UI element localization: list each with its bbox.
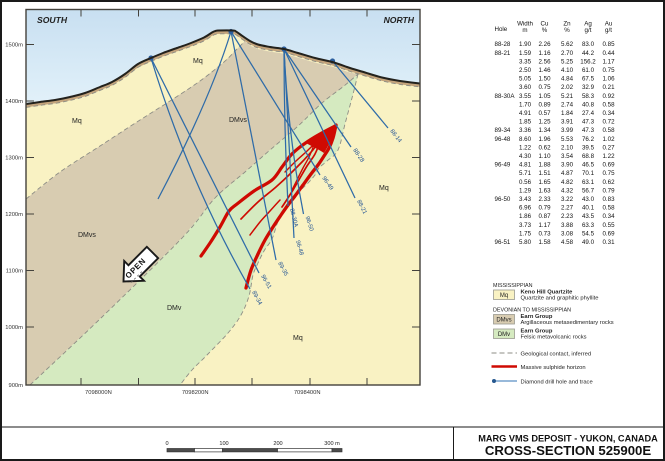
svg-text:CROSS-SECTION 525900E: CROSS-SECTION 525900E — [485, 443, 652, 458]
svg-text:44.2: 44.2 — [582, 50, 595, 57]
svg-text:Mq: Mq — [72, 118, 82, 125]
svg-text:5.05: 5.05 — [519, 76, 532, 83]
svg-text:1.70: 1.70 — [519, 101, 532, 108]
svg-text:0.62: 0.62 — [538, 144, 551, 151]
svg-text:88-28: 88-28 — [495, 41, 511, 48]
svg-text:3.22: 3.22 — [561, 196, 574, 203]
svg-text:1.86: 1.86 — [519, 213, 532, 220]
svg-text:5.62: 5.62 — [561, 41, 574, 48]
svg-text:1.46: 1.46 — [538, 67, 551, 74]
svg-text:5.21: 5.21 — [561, 93, 574, 100]
svg-text:39.5: 39.5 — [582, 144, 595, 151]
svg-text:1.17: 1.17 — [602, 58, 615, 65]
svg-text:7098200N: 7098200N — [182, 390, 209, 396]
svg-text:2.70: 2.70 — [561, 50, 574, 57]
svg-text:1.88: 1.88 — [538, 162, 551, 169]
svg-text:1.10: 1.10 — [538, 153, 551, 160]
svg-text:1.25: 1.25 — [538, 119, 551, 126]
svg-text:1100m: 1100m — [6, 269, 23, 275]
svg-text:4.10: 4.10 — [561, 67, 574, 74]
svg-text:MISSISSIPPIAN: MISSISSIPPIAN — [493, 283, 533, 289]
svg-text:3.55: 3.55 — [519, 93, 532, 100]
svg-text:1.58: 1.58 — [538, 239, 551, 246]
svg-text:100: 100 — [219, 441, 228, 447]
svg-text:1.59: 1.59 — [519, 50, 532, 57]
svg-text:2.33: 2.33 — [538, 196, 551, 203]
svg-text:2.74: 2.74 — [561, 101, 574, 108]
svg-text:2.56: 2.56 — [538, 58, 551, 65]
svg-text:89-34: 89-34 — [495, 127, 511, 134]
svg-text:0.21: 0.21 — [602, 84, 615, 91]
svg-text:0.55: 0.55 — [602, 222, 615, 229]
svg-text:m: m — [522, 27, 527, 34]
svg-text:0.69: 0.69 — [602, 230, 615, 237]
svg-text:5.53: 5.53 — [561, 136, 574, 143]
svg-text:43.5: 43.5 — [582, 213, 595, 220]
svg-text:g/t: g/t — [605, 27, 612, 34]
svg-text:g/t: g/t — [585, 27, 592, 34]
svg-text:76.2: 76.2 — [582, 136, 595, 143]
svg-text:1300m: 1300m — [5, 156, 23, 162]
svg-text:3.35: 3.35 — [519, 58, 532, 65]
svg-text:40.1: 40.1 — [582, 205, 595, 212]
svg-text:Geological contact, inferred: Geological contact, inferred — [521, 352, 592, 358]
svg-text:1.17: 1.17 — [538, 222, 551, 229]
svg-text:0.87: 0.87 — [538, 213, 551, 220]
svg-text:0.31: 0.31 — [602, 239, 615, 246]
svg-text:4.91: 4.91 — [519, 110, 532, 117]
svg-text:1000m: 1000m — [5, 325, 23, 331]
svg-text:3.60: 3.60 — [519, 84, 532, 91]
svg-text:DMv: DMv — [167, 305, 182, 312]
svg-text:300 m: 300 m — [324, 441, 340, 447]
svg-text:56.7: 56.7 — [582, 187, 595, 194]
svg-text:Argillaceous metasedimentary r: Argillaceous metasedimentary rocks — [521, 320, 614, 326]
svg-text:4.32: 4.32 — [561, 187, 574, 194]
svg-text:5.80: 5.80 — [519, 239, 532, 246]
svg-text:1200m: 1200m — [5, 212, 23, 218]
svg-text:DMvs: DMvs — [496, 317, 511, 323]
svg-text:27.4: 27.4 — [582, 110, 595, 117]
svg-text:1.06: 1.06 — [602, 76, 615, 83]
svg-text:7098000N: 7098000N — [85, 390, 112, 396]
svg-text:46.5: 46.5 — [582, 162, 595, 169]
svg-text:96-51: 96-51 — [495, 239, 511, 246]
svg-text:49.0: 49.0 — [582, 239, 595, 246]
svg-text:67.5: 67.5 — [582, 76, 595, 83]
svg-text:Mq: Mq — [193, 58, 203, 65]
svg-text:1.63: 1.63 — [538, 187, 551, 194]
svg-text:0: 0 — [165, 441, 168, 447]
svg-text:32.9: 32.9 — [582, 84, 595, 91]
svg-text:0.85: 0.85 — [602, 41, 615, 48]
svg-text:3.90: 3.90 — [561, 162, 574, 169]
svg-text:DMvs: DMvs — [78, 232, 96, 239]
svg-text:1.02: 1.02 — [602, 136, 615, 143]
svg-text:96-48: 96-48 — [495, 136, 511, 143]
svg-text:1.50: 1.50 — [538, 76, 551, 83]
svg-text:0.69: 0.69 — [602, 162, 615, 169]
svg-text:61.0: 61.0 — [582, 67, 595, 74]
svg-text:54.5: 54.5 — [582, 230, 595, 237]
svg-text:SOUTH: SOUTH — [37, 15, 68, 25]
svg-text:0.57: 0.57 — [538, 110, 551, 117]
svg-text:88-30A: 88-30A — [495, 93, 516, 100]
svg-text:96-50: 96-50 — [495, 196, 511, 203]
svg-text:DEVONIAN TO MISSISSIPPIAN: DEVONIAN TO MISSISSIPPIAN — [493, 308, 571, 314]
svg-text:Massive sulphide horizon: Massive sulphide horizon — [521, 365, 586, 371]
svg-text:0.75: 0.75 — [602, 67, 615, 74]
svg-text:1400m: 1400m — [5, 99, 23, 105]
svg-text:Diamond drill hole and trace: Diamond drill hole and trace — [521, 380, 593, 386]
svg-text:3.43: 3.43 — [519, 196, 532, 203]
svg-text:2.10: 2.10 — [561, 144, 574, 151]
svg-text:DMvs: DMvs — [229, 117, 247, 124]
svg-text:47.3: 47.3 — [582, 119, 595, 126]
svg-text:156.2: 156.2 — [580, 58, 596, 65]
svg-text:1.90: 1.90 — [519, 41, 532, 48]
svg-text:3.54: 3.54 — [561, 153, 574, 160]
svg-text:4.30: 4.30 — [519, 153, 532, 160]
svg-text:0.75: 0.75 — [602, 170, 615, 177]
svg-text:%: % — [564, 27, 570, 34]
svg-text:1.51: 1.51 — [538, 170, 551, 177]
svg-text:0.44: 0.44 — [602, 50, 615, 57]
svg-text:63.1: 63.1 — [582, 179, 595, 186]
svg-text:2.02: 2.02 — [561, 84, 574, 91]
svg-text:4.81: 4.81 — [519, 162, 532, 169]
svg-text:0.58: 0.58 — [602, 127, 615, 134]
svg-text:1.05: 1.05 — [538, 93, 551, 100]
svg-text:200: 200 — [273, 441, 282, 447]
svg-text:4.58: 4.58 — [561, 239, 574, 246]
svg-text:1.22: 1.22 — [519, 144, 532, 151]
svg-text:Felsic metavolcanic rocks: Felsic metavolcanic rocks — [521, 335, 587, 341]
svg-text:0.83: 0.83 — [602, 196, 615, 203]
svg-text:70.1: 70.1 — [582, 170, 595, 177]
svg-text:83.0: 83.0 — [582, 41, 595, 48]
svg-text:3.08: 3.08 — [561, 230, 574, 237]
svg-text:1.34: 1.34 — [538, 127, 551, 134]
svg-text:0.62: 0.62 — [602, 179, 615, 186]
svg-text:%: % — [542, 27, 548, 34]
svg-text:NORTH: NORTH — [384, 15, 415, 25]
svg-text:40.8: 40.8 — [582, 101, 595, 108]
svg-text:1500m: 1500m — [5, 43, 23, 49]
svg-text:0.79: 0.79 — [538, 205, 551, 212]
svg-text:68.8: 68.8 — [582, 153, 595, 160]
svg-text:2.23: 2.23 — [561, 213, 574, 220]
svg-text:2.50: 2.50 — [519, 67, 532, 74]
svg-text:1.85: 1.85 — [519, 119, 532, 126]
svg-text:4.87: 4.87 — [561, 170, 574, 177]
svg-text:1.65: 1.65 — [538, 179, 551, 186]
svg-text:0.72: 0.72 — [602, 119, 615, 126]
svg-text:3.91: 3.91 — [561, 119, 574, 126]
svg-text:Hole: Hole — [495, 26, 508, 33]
svg-text:3.73: 3.73 — [519, 222, 532, 229]
svg-text:43.0: 43.0 — [582, 196, 595, 203]
svg-text:0.34: 0.34 — [602, 213, 615, 220]
svg-text:0.34: 0.34 — [602, 110, 615, 117]
svg-text:47.3: 47.3 — [582, 127, 595, 134]
svg-text:58.3: 58.3 — [582, 93, 595, 100]
svg-text:0.75: 0.75 — [538, 84, 551, 91]
svg-text:8.60: 8.60 — [519, 136, 532, 143]
svg-text:0.89: 0.89 — [538, 101, 551, 108]
svg-text:0.58: 0.58 — [602, 205, 615, 212]
svg-text:Mq: Mq — [500, 293, 508, 299]
svg-text:DMv: DMv — [498, 332, 510, 338]
svg-text:1.29: 1.29 — [519, 187, 532, 194]
svg-text:900m: 900m — [8, 383, 23, 389]
svg-text:63.3: 63.3 — [582, 222, 595, 229]
svg-text:1.22: 1.22 — [602, 153, 615, 160]
svg-text:0.92: 0.92 — [602, 93, 615, 100]
svg-text:0.56: 0.56 — [519, 179, 532, 186]
svg-text:1.16: 1.16 — [538, 50, 551, 57]
svg-text:0.73: 0.73 — [538, 230, 551, 237]
svg-text:88-21: 88-21 — [495, 50, 511, 57]
svg-text:1.84: 1.84 — [561, 110, 574, 117]
svg-text:0.79: 0.79 — [602, 187, 615, 194]
svg-text:2.27: 2.27 — [561, 205, 574, 212]
svg-text:0.58: 0.58 — [602, 101, 615, 108]
svg-text:Mq: Mq — [293, 335, 303, 342]
svg-text:Quartzite and graphitic phylli: Quartzite and graphitic phyllite — [521, 296, 599, 302]
svg-text:3.88: 3.88 — [561, 222, 574, 229]
svg-text:1.96: 1.96 — [538, 136, 551, 143]
svg-text:1.75: 1.75 — [519, 230, 532, 237]
svg-text:MARG VMS DEPOSIT - YUKON, CANA: MARG VMS DEPOSIT - YUKON, CANADA — [478, 434, 658, 444]
svg-text:7098400N: 7098400N — [294, 390, 321, 396]
svg-text:4.84: 4.84 — [561, 76, 574, 83]
svg-text:6.96: 6.96 — [519, 205, 532, 212]
svg-text:5.25: 5.25 — [561, 58, 574, 65]
svg-text:3.36: 3.36 — [519, 127, 532, 134]
svg-text:3.99: 3.99 — [561, 127, 574, 134]
svg-text:5.71: 5.71 — [519, 170, 532, 177]
svg-text:96-49: 96-49 — [495, 162, 511, 169]
svg-text:0.27: 0.27 — [602, 144, 615, 151]
svg-text:4.82: 4.82 — [561, 179, 574, 186]
svg-text:Mq: Mq — [379, 185, 389, 192]
svg-text:2.26: 2.26 — [538, 41, 551, 48]
